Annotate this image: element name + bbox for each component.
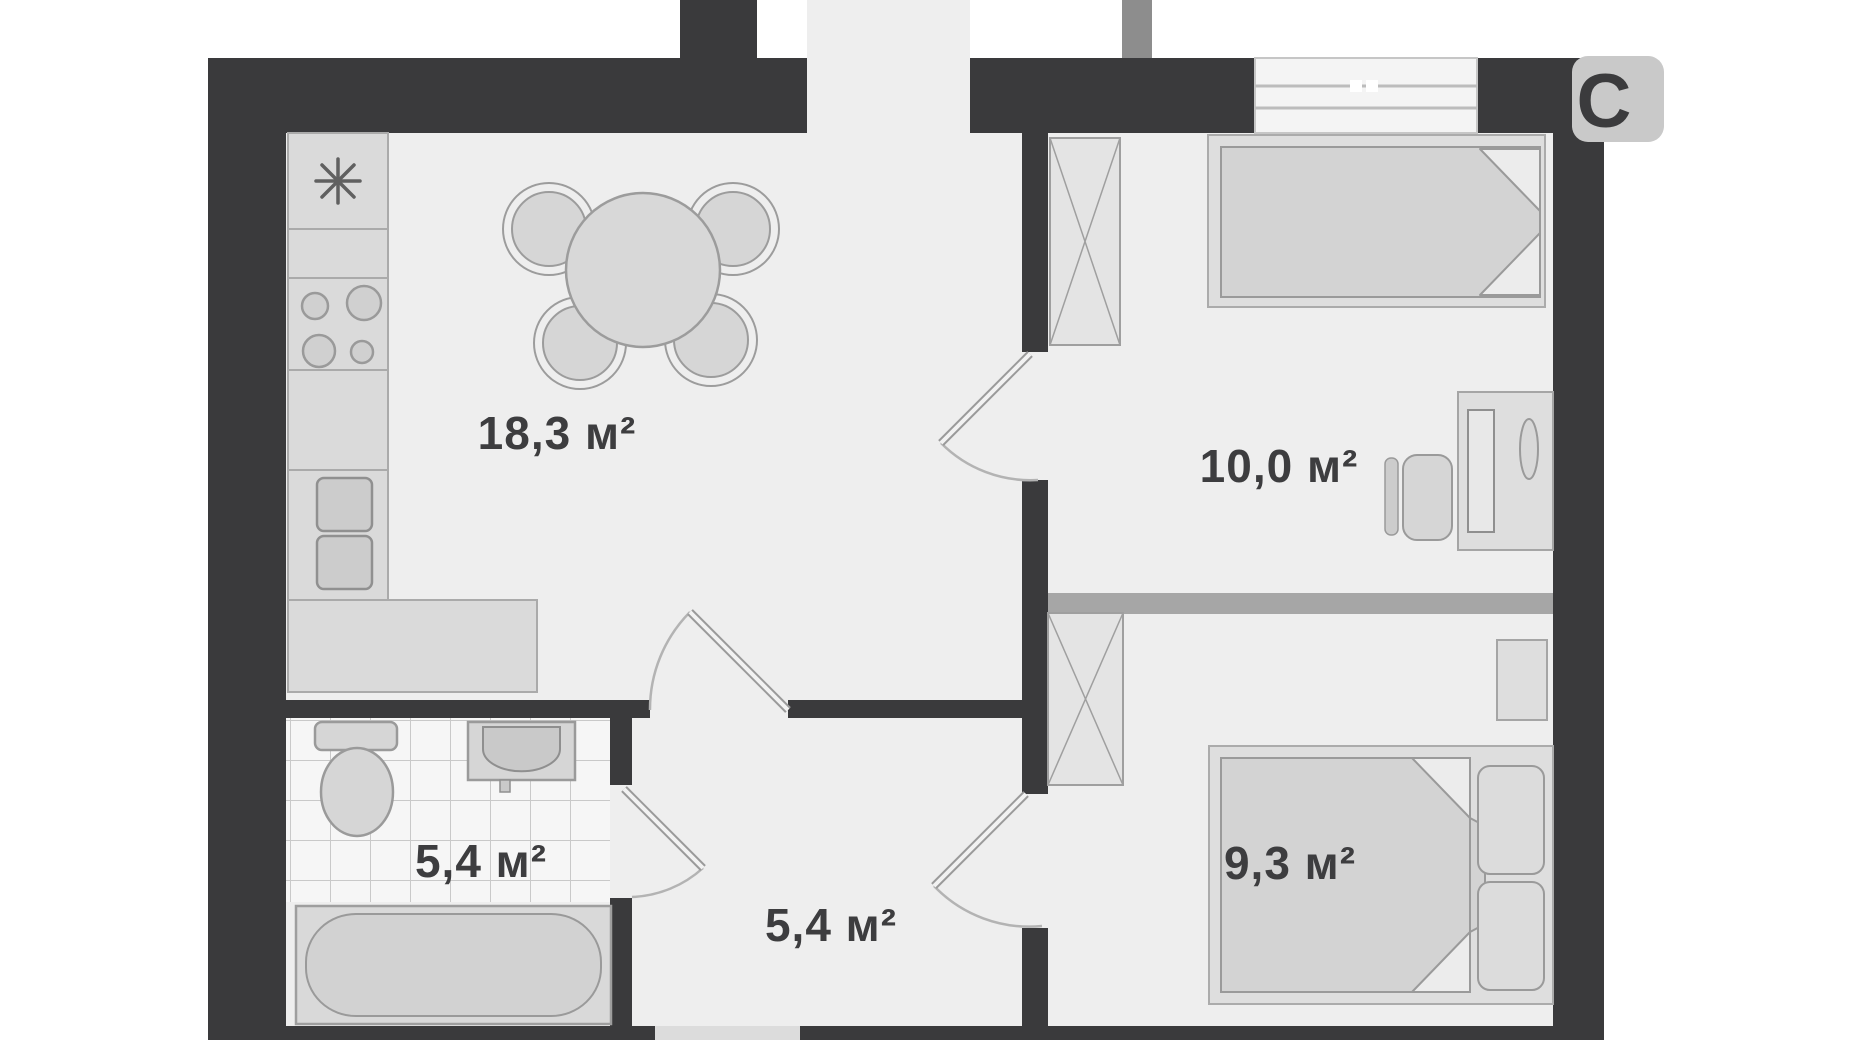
sink-basin-top xyxy=(317,478,372,531)
burner xyxy=(303,335,335,367)
toilet-tank xyxy=(315,722,397,750)
wall-bathroom-east-upper xyxy=(610,718,632,785)
desk-lamp xyxy=(1520,419,1538,479)
round-dining-table xyxy=(566,193,720,347)
toilet-bowl xyxy=(321,748,393,836)
pillow-bottom xyxy=(1478,882,1544,990)
wall-right xyxy=(1553,58,1604,1040)
sink-drain xyxy=(500,780,510,792)
burner xyxy=(302,293,328,319)
entrance-door-gap xyxy=(655,1026,800,1040)
desk-chair-armrest xyxy=(1385,458,1398,535)
window-handle-mark-1 xyxy=(1350,80,1362,92)
desk-monitor xyxy=(1468,410,1494,532)
room-label-hallway: 5,4 м² xyxy=(765,899,897,951)
nightstand xyxy=(1497,640,1547,720)
wall-left xyxy=(208,58,286,1040)
toilet xyxy=(315,722,397,836)
kitchen-counter-slab xyxy=(288,600,537,692)
desk-chair xyxy=(1403,455,1452,540)
window-top xyxy=(1255,58,1477,133)
partition-between-bedrooms xyxy=(1048,593,1553,614)
watermark: C xyxy=(1572,56,1664,144)
wall-hallway-north-right xyxy=(788,700,1022,718)
room-label-kitchen-living: 18,3 м² xyxy=(478,407,637,459)
room-label-bedroom-top: 10,0 м² xyxy=(1200,440,1359,492)
bed-single-mattress xyxy=(1221,147,1540,297)
window-frame xyxy=(1255,58,1477,133)
fridge-snowflake-icon xyxy=(316,159,360,203)
balcony-opening-floor xyxy=(807,0,970,133)
burner xyxy=(347,286,381,320)
bathtub-inner xyxy=(306,914,601,1016)
burner xyxy=(351,341,373,363)
balcony-glazing-stub xyxy=(1122,0,1152,58)
wall-bathroom-east-lower xyxy=(610,898,632,1026)
wall-core-upper xyxy=(1022,133,1048,352)
wall-top-left-segment xyxy=(208,58,807,133)
wall-hallway-north-left xyxy=(286,700,650,718)
floorplan-canvas: 18,3 м² 10,0 м² 9,3 м² 5,4 м² 5,4 м² C xyxy=(0,0,1850,1040)
room-label-bedroom-bottom: 9,3 м² xyxy=(1224,837,1356,889)
pillow-top xyxy=(1478,766,1544,874)
window-handle-mark-2 xyxy=(1366,80,1378,92)
wall-core-middle xyxy=(1022,480,1048,794)
sink-basin-bottom xyxy=(317,536,372,589)
wall-top-middle-segment xyxy=(970,58,1255,133)
sink-basin xyxy=(483,727,560,771)
watermark-letter: C xyxy=(1577,59,1632,144)
ventilation-shaft-lower xyxy=(1048,613,1123,785)
floorplan-svg: 18,3 м² 10,0 м² 9,3 м² 5,4 м² 5,4 м² C xyxy=(0,0,1850,1040)
wall-balcony-stub xyxy=(680,0,757,60)
room-label-bathroom: 5,4 м² xyxy=(415,835,547,887)
ventilation-shaft-upper xyxy=(1050,138,1120,345)
wall-core-lower xyxy=(1022,928,1048,1026)
bathtub xyxy=(296,906,611,1024)
wall-bottom xyxy=(208,1026,1604,1040)
